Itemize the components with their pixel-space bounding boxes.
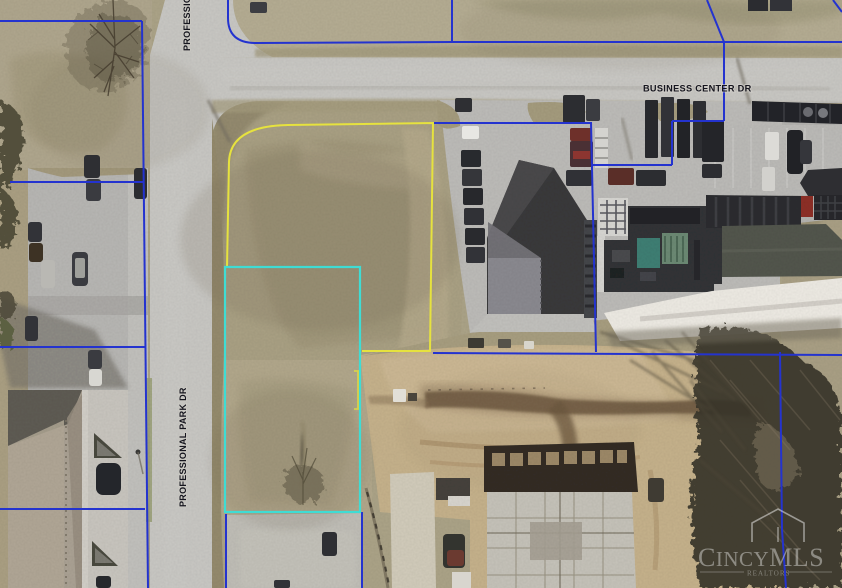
svg-text:PROFESSIONAL PARK DR: PROFESSIONAL PARK DR — [178, 387, 188, 507]
svg-text:CINCYMLS: CINCYMLS — [698, 543, 824, 572]
svg-text:REALTORS: REALTORS — [747, 570, 790, 578]
svg-text:BUSINESS CENTER DR: BUSINESS CENTER DR — [643, 84, 752, 94]
svg-text:PROFESSIONAL PARK DR: PROFESSIONAL PARK DR — [182, 0, 192, 51]
